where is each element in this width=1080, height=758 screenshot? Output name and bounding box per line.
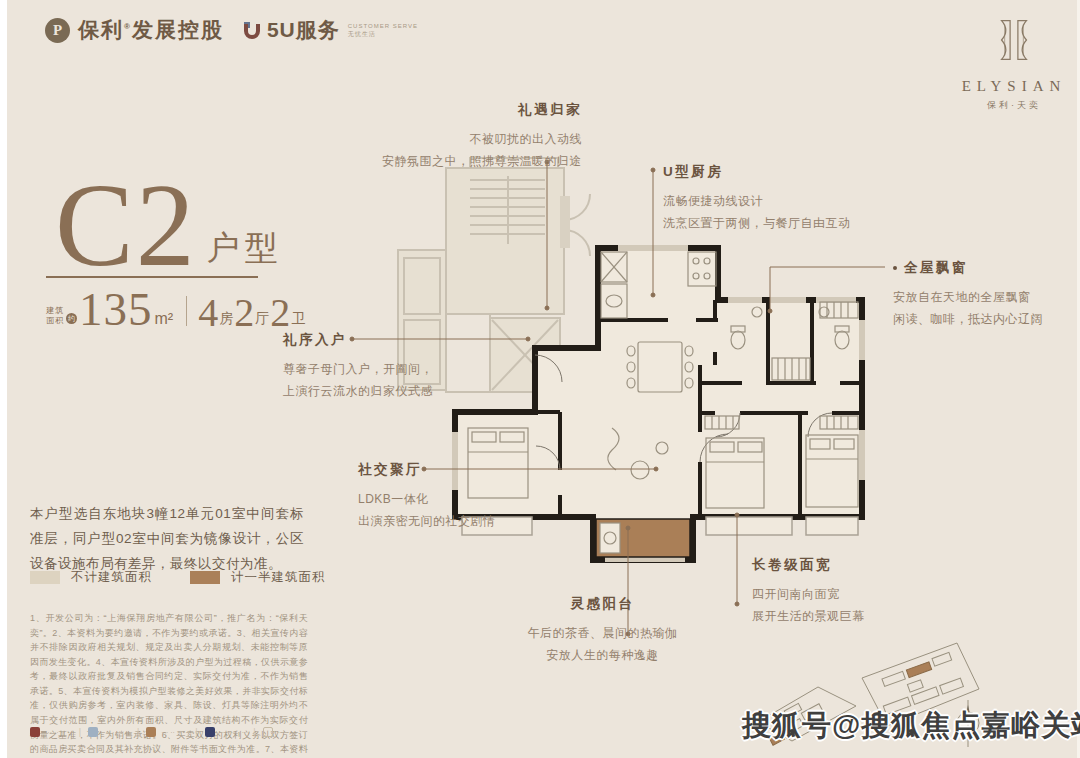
- sohu-watermark: 搜狐号@搜狐焦点嘉峪关站: [742, 706, 1080, 746]
- annotation-entry: 礼序入户 尊奢子母门入户，开阖间， 上演行云流水的归家仪式感: [283, 328, 478, 402]
- annotation-homecoming: 礼遇归家 不被叨扰的出入动线 安静氛围之中，照拂尊崇温暖的归途: [370, 98, 582, 172]
- annotation-bay-windows: 全屋飘窗 安放自在天地的全屋飘窗 闲读、咖啡，抵达内心辽阔: [893, 256, 1073, 330]
- annotation-wide-frontage: 长卷级面宽 四开间南向面宽 展开生活的景观巨幕: [752, 553, 942, 627]
- annotation-bullet-icon: [893, 266, 897, 270]
- annotation-balcony: 灵感阳台 午后的茶香、晨间的热瑜伽 安放人生的每种逸趣: [515, 592, 690, 666]
- annotation-social-hall: 社交聚厅 LDKB一体化 出演亲密无间的社交剧情: [358, 458, 558, 532]
- floorplan-poster: P 保利®发展控股 5U服务 CUSTOMER SERVE 无忧生活 ELYSI…: [0, 0, 1080, 758]
- annotation-u-kitchen: U型厨房 流畅便捷动线设计 洗烹区置于两侧，与餐厅自由互动: [663, 160, 873, 234]
